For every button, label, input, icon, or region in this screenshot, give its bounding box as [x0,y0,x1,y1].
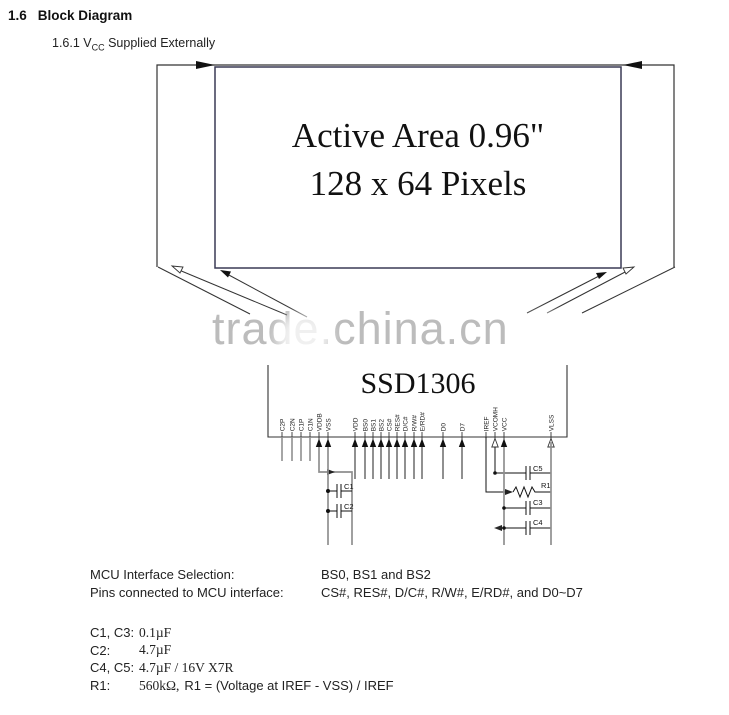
c2-label: C2 [344,502,354,511]
pin-label-C2N: C2N [289,418,296,431]
bom-value: 4.7µF [139,642,171,658]
blur-smudge [276,312,332,362]
capacitor-c4 [501,521,551,535]
bom-ref: C1, C3: [90,625,139,640]
left-fanout-lines [158,267,307,317]
bom-row: C2: 4.7µF [90,642,394,660]
blur-smudge [518,312,574,362]
bom-row: C4, C5: 4.7µF / 16V X7R [90,659,394,677]
open-arrowhead-icon [172,266,183,273]
note-value: CS#, RES#, D/C#, R/W#, E/RD#, and D0~D7 [321,585,583,600]
pin-arrow-up-icon [419,439,425,448]
pin-arrow-up-icon [501,439,507,448]
vddb-wire [319,447,352,545]
filled-arrowhead-icon [596,272,607,279]
datasheet-page: 1.6Block Diagram 1.6.1 VCC Supplied Exte… [0,0,729,715]
bom-value: 4.7µF / 16V X7R [139,660,234,676]
active-area-line2: 128 x 64 Pixels [310,160,527,208]
pin-label-BS1: BS1 [370,419,377,432]
pin-label-VLSS: VLSS [548,414,555,431]
blur-smudge [450,496,490,542]
pin-label-CS: CS# [386,418,393,431]
pin-arrow-up-icon [411,439,417,448]
bom-value: 0.1µF [139,625,171,641]
active-area-line1: Active Area 0.96" [292,112,544,160]
c3-label: C3 [533,498,543,507]
filled-arrowhead-icon [220,270,231,278]
pin-arrow-up-icon [370,439,376,448]
chip-pins: C2PC2NC1PC1NVDDBVSSVDDBS0BS1BS2CS#RES#D/… [279,407,555,479]
small-right-arrow-icon [505,489,513,495]
bom-ref: C2: [90,643,139,658]
pin-arrow-up-icon [394,439,400,448]
pin-arrow-up-icon [316,439,322,448]
pin-label-DC: D/C# [402,416,409,431]
r1-label: R1 [541,481,551,490]
note-label: MCU Interface Selection: [90,567,321,582]
pin-label-VCC: VCC [501,417,508,431]
pin-label-C1N: C1N [307,418,314,431]
bom-ref: C4, C5: [90,660,139,675]
pin-arrow-up-icon [402,439,408,448]
small-left-arrow-icon [494,525,502,531]
pin-label-ERD: E/RD# [419,412,426,432]
bom-value: 560kΩ, [139,678,179,694]
pin-label-RW: R/W# [411,415,418,432]
pin-arrow-up-icon [440,439,446,448]
c4-label: C4 [533,518,543,527]
arrow-right-icon [196,61,215,69]
bom-value2: R1 = (Voltage at IREF - VSS) / IREF [184,678,393,693]
pin-label-C2P: C2P [279,419,286,432]
note-label: Pins connected to MCU interface: [90,585,321,600]
note-row: MCU Interface Selection: BS0, BS1 and BS… [90,566,583,584]
pin-label-D7: D7 [459,423,466,432]
pin-label-BS2: BS2 [378,419,385,432]
pin-label-VDDB: VDDB [316,413,323,431]
pin-label-C1P: C1P [298,419,305,432]
pin-label-VSS: VSS [325,418,332,432]
bom-row: R1: 560kΩ, R1 = (Voltage at IREF - VSS) … [90,677,394,695]
c1-label: C1 [344,482,354,491]
pin-label-VCOMH: VCOMH [492,407,499,432]
active-area-label: Active Area 0.96" 128 x 64 Pixels [215,59,621,260]
note-row: Pins connected to MCU interface: CS#, RE… [90,584,583,602]
c5-label: C5 [533,464,543,473]
pin-label-RES: RES# [394,414,401,431]
component-values: C1, C3: 0.1µF C2: 4.7µF C4, C5: 4.7µF / … [90,624,394,694]
pin-label-IREF: IREF [483,416,490,431]
arrow-left-icon [623,61,642,69]
pin-open-arrow-up-icon [492,439,498,448]
pin-arrow-up-icon [325,439,331,448]
chip-name: SSD1306 [360,367,475,400]
open-arrowhead-icon [623,267,634,274]
mcu-notes: MCU Interface Selection: BS0, BS1 and BS… [90,566,583,601]
pin-label-D0: D0 [440,423,447,432]
pin-label-VDD: VDD [352,417,359,431]
note-value: BS0, BS1 and BS2 [321,567,431,582]
pin-arrow-up-icon [378,439,384,448]
pin-arrow-up-icon [362,439,368,448]
capacitor-c3 [502,501,551,515]
bom-row: C1, C3: 0.1µF [90,624,394,642]
pin-arrow-up-icon [386,439,392,448]
pin-arrow-up-icon [352,439,358,448]
pin-label-BS0: BS0 [362,419,369,432]
pin-arrow-up-icon [459,439,465,448]
bom-ref: R1: [90,678,139,693]
